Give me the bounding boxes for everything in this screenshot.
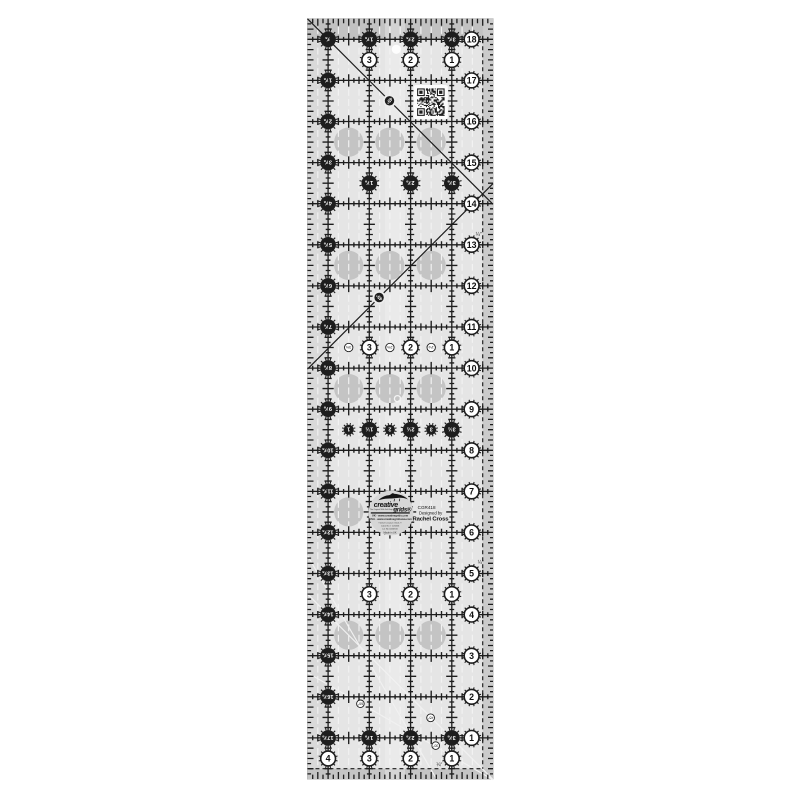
svg-text:1⅞: 1⅞ (365, 179, 373, 185)
svg-text:9⅞: 9⅞ (324, 405, 332, 411)
svg-text:45°: 45° (427, 716, 433, 720)
svg-text:7⅞: 7⅞ (324, 323, 332, 329)
svg-text:Made in UK: Made in UK (383, 531, 396, 534)
svg-text:4: 4 (326, 754, 331, 764)
svg-text:2: 2 (408, 55, 413, 65)
svg-text:Designed by: Designed by (419, 511, 443, 516)
svg-text:Lot No 0420516: Lot No 0420516 (382, 528, 398, 531)
svg-text:3⅞: 3⅞ (448, 179, 456, 185)
svg-text:1½: 1½ (428, 345, 434, 349)
svg-text:1: 1 (449, 343, 454, 353)
svg-text:Cube No # 123456: Cube No # 123456 (381, 526, 400, 528)
svg-text:8: 8 (469, 445, 474, 455)
svg-text:2: 2 (388, 426, 391, 432)
svg-text:3: 3 (469, 651, 474, 661)
svg-text:15: 15 (467, 158, 477, 168)
svg-text:3⅞: 3⅞ (324, 159, 332, 165)
svg-text:3½: 3½ (448, 426, 456, 433)
svg-text:Rachel Cross: Rachel Cross (412, 516, 449, 522)
svg-text:1½: 1½ (365, 426, 373, 433)
svg-text:10⅞: 10⅞ (322, 446, 333, 452)
svg-text:1: 1 (449, 589, 454, 599)
svg-text:14⅞: 14⅞ (322, 611, 333, 617)
svg-text:13: 13 (467, 240, 477, 250)
svg-text:UK - www.creativegrids.com: UK - www.creativegrids.com (372, 514, 409, 518)
svg-text:1⅞: 1⅞ (365, 35, 373, 41)
svg-text:16⅞: 16⅞ (322, 693, 333, 699)
svg-text:¼″: ¼″ (436, 763, 442, 769)
svg-text:2⅞: 2⅞ (406, 179, 414, 185)
svg-text:2: 2 (408, 343, 413, 353)
svg-text:3: 3 (367, 589, 372, 599)
svg-text:13⅞: 13⅞ (322, 569, 333, 575)
svg-text:CGR418: CGR418 (418, 505, 436, 510)
svg-text:3: 3 (367, 343, 372, 353)
svg-text:6⅞: 6⅞ (324, 282, 332, 288)
svg-text:¼″: ¼″ (476, 232, 482, 238)
svg-text:60°: 60° (357, 702, 363, 706)
svg-text:2⅞: 2⅞ (406, 734, 414, 740)
svg-text:3½: 3½ (345, 345, 351, 349)
svg-text:12⅞: 12⅞ (322, 528, 333, 534)
svg-text:10: 10 (467, 363, 477, 373)
svg-text:16: 16 (467, 117, 477, 127)
svg-text:8⅞: 8⅞ (324, 364, 332, 370)
svg-text:1: 1 (347, 426, 350, 432)
svg-text:1: 1 (449, 754, 454, 764)
svg-text:7: 7 (469, 487, 474, 497)
svg-text:17⅞: 17⅞ (322, 734, 333, 740)
svg-text:1⅞: 1⅞ (365, 734, 373, 740)
svg-text:4: 4 (469, 610, 474, 620)
svg-text:11⅞: 11⅞ (322, 487, 333, 493)
svg-text:2: 2 (469, 692, 474, 702)
svg-text:©2012 Creative Grids ®: ©2012 Creative Grids ® (378, 522, 402, 525)
svg-text:12: 12 (467, 281, 477, 291)
svg-text:4⅞: 4⅞ (324, 200, 332, 206)
svg-text:5⅞: 5⅞ (324, 241, 332, 247)
svg-text:30°: 30° (432, 743, 438, 747)
svg-text:¼″: ¼″ (478, 560, 484, 566)
svg-text:2: 2 (408, 589, 413, 599)
svg-text:3⅞: 3⅞ (448, 734, 456, 740)
svg-text:3: 3 (367, 754, 372, 764)
svg-text:2½: 2½ (406, 426, 414, 433)
svg-text:2⅞: 2⅞ (406, 35, 414, 41)
svg-text:11: 11 (467, 322, 476, 332)
svg-text:5: 5 (469, 569, 474, 579)
svg-text:6: 6 (469, 528, 474, 538)
svg-text:18: 18 (467, 34, 477, 44)
svg-text:The Original With Self-Grip Ba: The Original With Self-Grip Back (370, 508, 397, 511)
svg-text:3: 3 (430, 426, 433, 432)
svg-text:2⅞: 2⅞ (324, 117, 332, 123)
svg-text:3⅞: 3⅞ (448, 35, 456, 41)
svg-text:3: 3 (367, 55, 372, 65)
svg-text:2: 2 (408, 754, 413, 764)
svg-text:15⅞: 15⅞ (322, 652, 333, 658)
svg-text:9: 9 (469, 404, 474, 414)
svg-text:1: 1 (449, 55, 454, 65)
svg-text:⅞: ⅞ (325, 35, 330, 41)
svg-text:2½: 2½ (386, 345, 392, 349)
svg-text:17: 17 (467, 76, 477, 86)
svg-text:1⅞: 1⅞ (324, 76, 332, 82)
svg-text:1: 1 (469, 733, 474, 743)
svg-text:14: 14 (467, 199, 477, 209)
svg-text:USA - www.creativegridsusa.com: USA - www.creativegridsusa.com (369, 517, 412, 521)
